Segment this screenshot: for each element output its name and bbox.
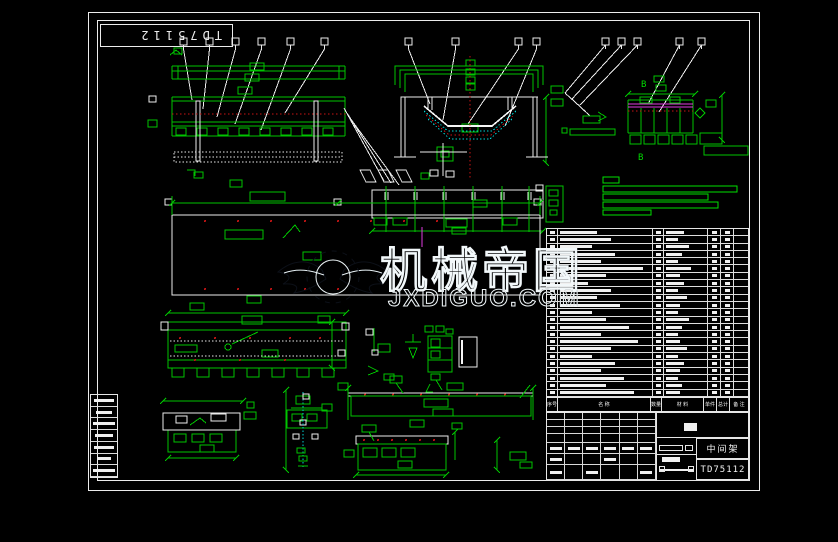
title-grid-cell — [620, 454, 638, 465]
bom-cell — [664, 368, 708, 374]
section-label-top: B — [641, 80, 646, 90]
bom-cell — [547, 375, 558, 381]
bom-cell — [547, 229, 558, 235]
bom-cell — [708, 244, 721, 250]
bom-row — [547, 317, 748, 324]
title-grid-cell — [547, 434, 565, 443]
title-grid-cell — [638, 465, 656, 480]
bom-cell — [708, 309, 721, 315]
bom-cell — [708, 302, 721, 308]
bom-cell — [547, 265, 558, 271]
bom-row — [547, 368, 748, 375]
bom-cell — [547, 331, 558, 337]
bom-cell — [653, 244, 664, 250]
bom-cell — [664, 338, 708, 344]
title-grid-cell — [601, 413, 619, 420]
bom-row — [547, 265, 748, 272]
bom-cell — [558, 338, 653, 344]
title-grid-cell — [601, 443, 619, 454]
bom-cell — [708, 368, 721, 374]
bom-cell — [558, 331, 653, 337]
bom-cell — [547, 309, 558, 315]
bom-cell — [734, 258, 748, 264]
bom-cell — [558, 309, 653, 315]
bom-cell — [734, 273, 748, 279]
bom-cell — [653, 360, 664, 366]
title-grid-cell — [601, 454, 619, 465]
bom-cell — [734, 265, 748, 271]
title-grid-cell — [547, 443, 565, 454]
bom-cell — [558, 251, 653, 257]
title-smear — [662, 457, 680, 462]
bom-cell — [721, 382, 734, 388]
bom-cell — [708, 258, 721, 264]
bom-row — [547, 353, 748, 360]
title-grid-cell — [583, 420, 601, 427]
bom-cell — [721, 287, 734, 293]
title-grid-cell — [547, 413, 565, 420]
bom-cell — [547, 353, 558, 359]
bom-cell — [547, 295, 558, 301]
bom-cell — [547, 368, 558, 374]
bom-cell — [734, 346, 748, 352]
bom-cell — [664, 244, 708, 250]
bom-cell — [734, 390, 748, 396]
bom-cell — [721, 331, 734, 337]
bom-row — [547, 382, 748, 389]
bom-row — [547, 244, 748, 251]
bom-cell — [721, 265, 734, 271]
bom-cell — [708, 331, 721, 337]
bom-cell — [721, 258, 734, 264]
revision-row — [91, 395, 117, 407]
belt-direction-arrow — [419, 222, 425, 247]
corner-stamp: TD75112 — [100, 24, 233, 47]
revision-row — [91, 442, 117, 454]
bom-cell — [558, 317, 653, 323]
title-grid-cell — [638, 434, 656, 443]
revision-row — [91, 454, 117, 466]
title-grid-cell — [565, 443, 583, 454]
bom-cell — [734, 295, 748, 301]
bom-cell — [664, 287, 708, 293]
revision-row — [91, 465, 117, 477]
bom-cell — [547, 258, 558, 264]
bom-cell — [708, 251, 721, 257]
bom-row — [547, 280, 748, 287]
bom-cell — [734, 236, 748, 242]
bom-cell — [547, 273, 558, 279]
bom-rows — [547, 229, 748, 397]
bom-header-cell: 备 注 — [730, 398, 748, 411]
revision-strip — [90, 394, 118, 478]
bom-cell — [734, 353, 748, 359]
bom-row — [547, 287, 748, 294]
title-grid-cell — [583, 434, 601, 443]
bom-cell — [558, 324, 653, 330]
title-middle-box — [656, 413, 750, 438]
bom-cell — [664, 265, 708, 271]
bom-cell — [653, 236, 664, 242]
bom-header-row: 序号名 称数量材 料单件总计备 注 — [547, 397, 748, 411]
bom-header-cell: 总计 — [717, 398, 730, 411]
bom-cell — [558, 360, 653, 366]
title-grid-cell — [565, 465, 583, 480]
bom-cell — [734, 302, 748, 308]
title-grid-cell — [638, 427, 656, 434]
bom-header-cell: 材 料 — [662, 398, 704, 411]
bom-header-cell: 数量 — [651, 398, 662, 411]
bom-cell — [653, 390, 664, 396]
bom-cell — [558, 390, 653, 396]
bom-cell — [664, 324, 708, 330]
details-bottom-left — [160, 398, 327, 461]
bom-cell — [547, 280, 558, 286]
title-grid-cell — [565, 413, 583, 420]
bom-cell — [708, 236, 721, 242]
bom-cell — [734, 324, 748, 330]
revision-row — [91, 407, 117, 419]
bom-cell — [734, 229, 748, 235]
title-grid-cell — [601, 465, 619, 480]
bom-cell — [721, 295, 734, 301]
bom-cell — [653, 229, 664, 235]
title-grid-cell — [547, 420, 565, 427]
bom-cell — [721, 236, 734, 242]
bom-cell — [734, 382, 748, 388]
title-grid-cell — [601, 420, 619, 427]
bom-row — [547, 390, 748, 397]
bom-cell — [547, 317, 558, 323]
bom-cell — [664, 375, 708, 381]
bom-cell — [721, 390, 734, 396]
bom-cell — [721, 346, 734, 352]
section-symbol-box — [546, 186, 563, 222]
title-grid-cell — [565, 434, 583, 443]
bom-cell — [653, 382, 664, 388]
bom-cell — [547, 302, 558, 308]
bom-cell — [721, 317, 734, 323]
bom-cell — [721, 309, 734, 315]
bom-cell — [721, 375, 734, 381]
bom-cell — [708, 338, 721, 344]
bom-row — [547, 273, 748, 280]
title-grid-cell — [638, 413, 656, 420]
bom-cell — [708, 360, 721, 366]
bom-cell — [653, 280, 664, 286]
bom-cell — [547, 287, 558, 293]
title-middle-lower — [656, 438, 696, 480]
bom-cell — [721, 273, 734, 279]
bom-header-cell: 名 称 — [558, 398, 651, 411]
title-grid-cell — [565, 420, 583, 427]
bom-cell — [708, 353, 721, 359]
divider — [657, 454, 697, 455]
bom-cell — [653, 265, 664, 271]
bom-cell — [708, 287, 721, 293]
bom-cell — [653, 353, 664, 359]
view-strip — [369, 185, 546, 247]
bom-cell — [558, 287, 653, 293]
bom-cell — [664, 251, 708, 257]
bom-row — [547, 346, 748, 353]
bom-cell — [721, 251, 734, 257]
bom-cell — [558, 265, 653, 271]
title-grid-cell — [583, 427, 601, 434]
bom-cell — [547, 390, 558, 396]
bom-cell — [547, 338, 558, 344]
bom-cell — [558, 295, 653, 301]
bom-cell — [721, 229, 734, 235]
bom-row — [547, 338, 748, 345]
bom-cell — [547, 346, 558, 352]
title-block: 中间架 TD75112 — [546, 412, 749, 481]
bom-cell — [708, 265, 721, 271]
bom-cell — [664, 280, 708, 286]
bom-cell — [547, 236, 558, 242]
bom-cell — [708, 273, 721, 279]
bom-cell — [653, 317, 664, 323]
title-grid-cell — [620, 443, 638, 454]
bom-cell — [734, 360, 748, 366]
bom-cell — [653, 258, 664, 264]
drawing-number-cell: TD75112 — [696, 459, 750, 480]
title-grid-cell — [583, 454, 601, 465]
bom-cell — [721, 302, 734, 308]
title-grid-cell — [620, 420, 638, 427]
bom-cell — [653, 346, 664, 352]
bom-cell — [653, 368, 664, 374]
bom-cell — [721, 244, 734, 250]
bom-cell — [664, 360, 708, 366]
bom-header-cell: 单件 — [704, 398, 717, 411]
bom-cell — [664, 390, 708, 396]
bom-cell — [547, 244, 558, 250]
bom-cell — [653, 309, 664, 315]
bom-cell — [721, 353, 734, 359]
item-balloons — [180, 38, 705, 130]
bom-row — [547, 360, 748, 367]
cad-sheet: B B — [0, 0, 838, 542]
view-channel-plan — [161, 296, 349, 377]
view-cross-section — [394, 56, 563, 178]
title-smear — [659, 466, 665, 472]
bom-cell — [664, 302, 708, 308]
bom-cell — [734, 331, 748, 337]
bom-cell — [547, 324, 558, 330]
bom-cell — [708, 346, 721, 352]
bom-cell — [558, 382, 653, 388]
bom-cell — [708, 295, 721, 301]
bom-cell — [664, 353, 708, 359]
view-side-elevation — [148, 48, 429, 187]
title-grid-cell — [620, 434, 638, 443]
bom-row — [547, 302, 748, 309]
bom-row — [547, 324, 748, 331]
bom-cell — [558, 258, 653, 264]
bom-cell — [558, 280, 653, 286]
bom-row — [547, 375, 748, 382]
bom-cell — [558, 236, 653, 242]
title-grid-cell — [620, 413, 638, 420]
bom-cell — [664, 382, 708, 388]
bom-cell — [708, 324, 721, 330]
title-grid-cell — [601, 427, 619, 434]
part-name-cell: 中间架 — [696, 438, 750, 459]
bom-cell — [734, 280, 748, 286]
bom-table: 序号名 称数量材 料单件总计备 注 — [546, 228, 749, 412]
title-signature-grid — [547, 413, 656, 480]
title-middle-stamp — [684, 423, 697, 431]
bom-cell — [558, 375, 653, 381]
bom-cell — [664, 309, 708, 315]
bom-cell — [653, 338, 664, 344]
bom-cell — [734, 244, 748, 250]
bom-cell — [653, 273, 664, 279]
title-grid-cell — [583, 413, 601, 420]
bom-cell — [721, 324, 734, 330]
bom-cell — [547, 382, 558, 388]
bom-cell — [721, 280, 734, 286]
bom-cell — [547, 360, 558, 366]
title-grid-cell — [620, 465, 638, 480]
bom-cell — [708, 229, 721, 235]
bom-cell — [734, 251, 748, 257]
title-grid-cell — [583, 443, 601, 454]
bom-cell — [558, 244, 653, 250]
bom-cell — [734, 375, 748, 381]
title-grid-cell — [601, 434, 619, 443]
bom-cell — [664, 331, 708, 337]
bom-row — [547, 251, 748, 258]
bom-cell — [664, 295, 708, 301]
bom-cell — [653, 302, 664, 308]
notes-block — [603, 177, 737, 215]
bom-cell — [664, 258, 708, 264]
bom-cell — [734, 287, 748, 293]
bom-cell — [664, 236, 708, 242]
bom-cell — [558, 302, 653, 308]
bom-cell — [558, 346, 653, 352]
bom-cell — [653, 251, 664, 257]
section-label-bottom: B — [638, 153, 643, 163]
bom-cell — [708, 317, 721, 323]
details-middle — [366, 326, 477, 392]
bom-cell — [653, 295, 664, 301]
title-grid-cell — [638, 420, 656, 427]
title-grid-cell — [638, 443, 656, 454]
bom-cell — [653, 287, 664, 293]
bom-cell — [721, 368, 734, 374]
title-smear — [685, 445, 693, 451]
bom-cell — [664, 229, 708, 235]
bom-cell — [547, 251, 558, 257]
bom-cell — [734, 317, 748, 323]
bom-cell — [664, 273, 708, 279]
bom-cell — [664, 317, 708, 323]
bom-row — [547, 258, 748, 265]
bom-cell — [653, 331, 664, 337]
bom-header-cell: 序号 — [547, 398, 558, 411]
bom-cell — [721, 338, 734, 344]
bom-cell — [558, 368, 653, 374]
bom-cell — [558, 353, 653, 359]
title-grid-cell — [547, 427, 565, 434]
bom-cell — [558, 273, 653, 279]
title-smear — [688, 466, 694, 472]
bom-row — [547, 236, 748, 243]
bom-cell — [708, 280, 721, 286]
bom-cell — [734, 368, 748, 374]
bom-row — [547, 309, 748, 316]
bom-cell — [734, 338, 748, 344]
title-smear — [659, 445, 683, 451]
title-grid-cell — [583, 465, 601, 480]
title-grid-cell — [565, 427, 583, 434]
title-grid-cell — [620, 427, 638, 434]
bom-cell — [721, 360, 734, 366]
detail-bolt — [283, 387, 332, 473]
title-grid-cell — [638, 454, 656, 465]
bom-cell — [734, 309, 748, 315]
bom-row — [547, 295, 748, 302]
view-detail-b: B B — [562, 76, 748, 163]
bom-row — [547, 229, 748, 236]
details-bottom-middle — [338, 376, 536, 478]
revision-row — [91, 418, 117, 430]
bom-cell — [653, 375, 664, 381]
bom-cell — [558, 229, 653, 235]
bom-cell — [708, 375, 721, 381]
title-grid-cell — [547, 454, 565, 465]
bom-cell — [664, 346, 708, 352]
bom-cell — [708, 390, 721, 396]
revision-row — [91, 430, 117, 442]
title-grid-cell — [547, 465, 565, 480]
bom-cell — [708, 382, 721, 388]
title-grid-cell — [565, 454, 583, 465]
bom-cell — [653, 324, 664, 330]
bom-row — [547, 331, 748, 338]
